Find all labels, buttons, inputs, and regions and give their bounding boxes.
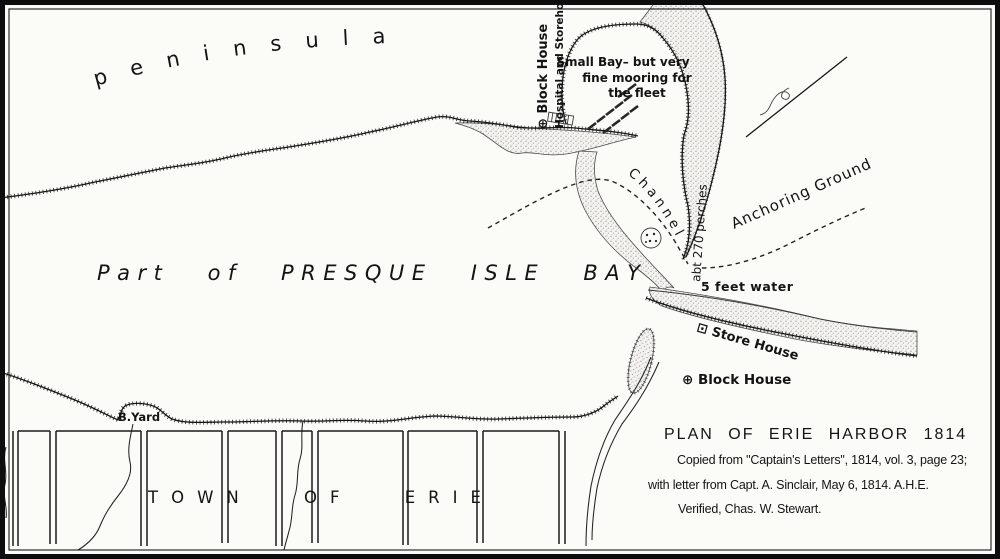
anchorage-dashed-line [702,207,868,268]
boat-yard-label: B.Yard [118,410,160,424]
shoal-patch [641,228,661,248]
anchoring-ground-label: Anchoring Ground [728,154,874,232]
small-bay-note-line2: fine mooring for [582,71,692,85]
water-depth-label: 5 feet water [701,279,794,294]
block-house-lower-label: ⊕ Block House [682,372,791,388]
mainland-shoreline [0,372,618,422]
title-block: PLAN OF ERIE HARBOR 1814 Copied from "Ca… [647,426,967,516]
title-verified-line: Verified, Chas. W. Stewart. [678,502,821,516]
title-letter-line: with letter from Capt. A. Sinclair, May … [647,478,929,492]
bearing-line-squiggle-icon [760,88,789,115]
beach-band-sand [640,1,725,259]
map-page: peninsula Part of PRESQUE ISLE BAY TOWN … [0,0,1000,559]
creek-middle [284,421,303,550]
small-bay-note-line3: the fleet [608,86,666,100]
presque-isle-bay-label: Part of PRESQUE ISLE BAY [97,261,647,285]
small-bay-note-line1: Small Bay– but very [556,55,689,69]
creek-west [78,424,133,550]
peninsula-label: peninsula [91,23,410,90]
creek-east-bank2 [592,362,659,540]
bearing-line [746,57,847,137]
title-source-line: Copied from "Captain's Letters", 1814, v… [677,453,967,467]
harbor-map: peninsula Part of PRESQUE ISLE BAY TOWN … [0,0,1000,559]
shoal-dots [645,233,657,243]
block-house-upper-label: ⊕ Block House [536,24,551,129]
small-bay-note: Small Bay– but very fine mooring for the… [556,55,691,100]
map-title: PLAN OF ERIE HARBOR 1814 [664,426,967,443]
mainland-shoreline-hachure [0,372,618,422]
town-of-erie-label: TOWN OF ERIE [147,488,494,507]
